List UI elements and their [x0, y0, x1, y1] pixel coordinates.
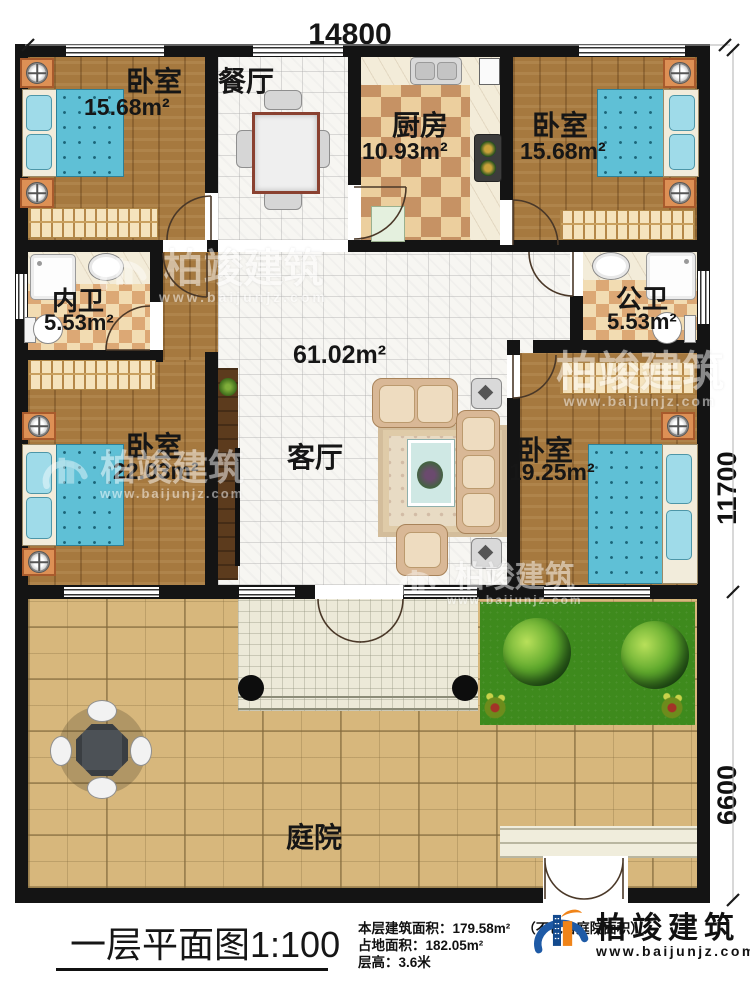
room-area-kitchen: 10.93m²	[362, 138, 448, 165]
window-top-bedroom-tr	[578, 44, 686, 57]
sofa-side	[456, 410, 500, 534]
title-underline	[56, 968, 328, 971]
wardrobe	[560, 362, 695, 394]
kitchen-sink	[410, 57, 462, 85]
floor-corridor	[163, 252, 218, 360]
hall-area-value: 61.02m²	[293, 341, 386, 370]
room-label-courtyard: 庭院	[286, 816, 342, 856]
column	[238, 675, 264, 701]
room-area-bedroom-tr: 15.68m²	[520, 138, 606, 165]
dimension-right-lower: 6600	[712, 765, 743, 825]
bed	[597, 89, 665, 177]
outdoor-chair	[87, 700, 117, 722]
drain-icon	[684, 259, 689, 264]
room-label-living: 客厅	[287, 436, 343, 476]
wardrobe	[28, 360, 156, 390]
stat-value: 179.58m²	[453, 921, 511, 936]
bed	[588, 444, 664, 584]
pillow	[26, 134, 52, 170]
brand-url: www.baijunjz.com	[596, 944, 750, 959]
porch	[238, 599, 478, 711]
wall-bedroombl-right	[205, 352, 218, 585]
nightstand	[20, 58, 54, 88]
wardrobe	[560, 210, 695, 240]
lamp-icon	[26, 182, 48, 204]
table-decor-icon	[417, 461, 443, 489]
pillow	[669, 95, 695, 131]
brand-logo: 柏竣建筑 www.baijunjz.com	[530, 905, 750, 967]
lamp-icon	[667, 415, 689, 437]
room-label-dining: 餐厅	[218, 60, 274, 100]
wall-bedroombr-left-top	[507, 340, 520, 355]
room-area-bath-inner: 5.53m²	[44, 310, 114, 336]
sofa-cushion	[462, 417, 495, 451]
room-area-bath-public: 5.53m²	[607, 309, 677, 335]
side-table-lamp-icon	[478, 385, 494, 401]
pillow	[666, 454, 692, 504]
door-gap-bath-public	[570, 252, 583, 296]
door-gap-bedroom-tr	[500, 200, 513, 245]
column	[452, 675, 478, 701]
wash-basin	[592, 252, 630, 280]
door-gap-kitchen	[348, 185, 361, 240]
nightstand	[20, 178, 54, 208]
dimension-right-upper: 11700	[712, 451, 743, 525]
door-gap-bedroom-tl	[205, 193, 218, 240]
nightstand	[22, 548, 56, 576]
brand-name: 柏竣建筑	[596, 913, 750, 945]
nightstand	[663, 58, 696, 88]
sofa-cushion	[417, 385, 453, 423]
wash-basin	[88, 253, 124, 281]
wall-bedroomtl-right	[205, 44, 218, 193]
pillow	[669, 134, 695, 170]
wall-bathinner-right	[150, 252, 163, 302]
wall-bedroomtr-left-stub	[500, 245, 513, 252]
porch-door-opening	[315, 585, 403, 599]
tree	[503, 618, 571, 686]
window-porch-left	[238, 586, 296, 598]
wall-bedroombr-left	[507, 398, 520, 585]
porch-step-line	[238, 696, 478, 698]
sink-basin	[437, 62, 457, 80]
burner-icon	[480, 141, 496, 157]
vent-box	[479, 58, 500, 85]
pillow	[26, 95, 52, 131]
drain-icon	[37, 261, 42, 266]
flower-icon	[482, 687, 508, 719]
side-table	[471, 378, 502, 409]
lamp-icon	[28, 415, 50, 437]
door-gap-bath-inner	[150, 302, 163, 350]
sofa-cushion	[379, 385, 415, 423]
sofa-cushion	[462, 493, 495, 527]
fridge	[371, 206, 405, 242]
stat-label: 占地面积：	[358, 938, 426, 953]
brand-logo-icon	[530, 905, 592, 967]
tree	[621, 621, 689, 689]
window-right-bath	[697, 270, 710, 325]
wall-bedroomtl-bottom	[15, 240, 163, 252]
stove	[474, 134, 502, 182]
flower-icon	[659, 687, 685, 719]
wardrobe	[28, 208, 158, 238]
nightstand	[663, 178, 696, 208]
side-table-lamp-icon	[478, 545, 494, 561]
pillow	[26, 497, 52, 539]
room-area-bedroom-tl: 15.68m²	[84, 94, 170, 121]
dining-table	[252, 112, 320, 194]
stat-value: 3.6米	[399, 955, 431, 970]
plant-icon	[219, 378, 237, 396]
lamp-icon	[28, 551, 50, 573]
armchair	[396, 524, 448, 576]
outdoor-chair	[50, 736, 72, 766]
door-gap-bedroom-br	[507, 355, 520, 398]
stat-label: 本层建筑面积：	[358, 921, 453, 936]
window-mid-bedroom-bl	[63, 586, 160, 598]
sofa-cushion	[462, 455, 495, 489]
outdoor-chair	[87, 777, 117, 799]
window-top-bedroom-tl	[65, 44, 165, 57]
lamp-icon	[26, 62, 48, 84]
stat-label: 层高：	[358, 955, 399, 970]
nightstand	[22, 412, 56, 440]
stat-value: 182.05m²	[426, 938, 484, 953]
pillow	[26, 452, 52, 494]
wall-stub	[207, 240, 218, 252]
tv	[235, 448, 240, 566]
window-porch-right	[403, 586, 478, 598]
dimension-top: 14800	[280, 18, 420, 52]
sink-basin	[415, 62, 435, 80]
lamp-icon	[669, 62, 691, 84]
porch-step-line	[238, 708, 478, 710]
burner-icon	[480, 160, 496, 176]
room-area-bedroom-br: 19.25m²	[509, 459, 595, 486]
lamp-icon	[669, 182, 691, 204]
plan-title: 一层平面图1:100	[70, 916, 340, 968]
nightstand	[661, 412, 695, 440]
window-left-bath	[15, 273, 28, 320]
room-area-bedroom-bl: 22.03m²	[113, 458, 199, 485]
side-table	[471, 538, 502, 569]
toilet-tank	[684, 315, 696, 343]
window-mid-bedroom-br	[543, 586, 651, 598]
coffee-table	[408, 440, 454, 506]
gate-recess	[543, 856, 628, 903]
outdoor-chair	[130, 736, 152, 766]
pillow	[666, 510, 692, 560]
sofa-back	[372, 378, 458, 428]
sofa-cushion	[404, 532, 441, 568]
gate-walkway	[500, 826, 697, 858]
wall-bedroomtr-bottom	[513, 240, 710, 252]
wall-kitchen-left	[348, 44, 361, 185]
floor-plan-page: 卧室 15.68m² 餐厅 厨房 10.93m² 卧室 15.68m² 内卫 5…	[0, 0, 750, 988]
